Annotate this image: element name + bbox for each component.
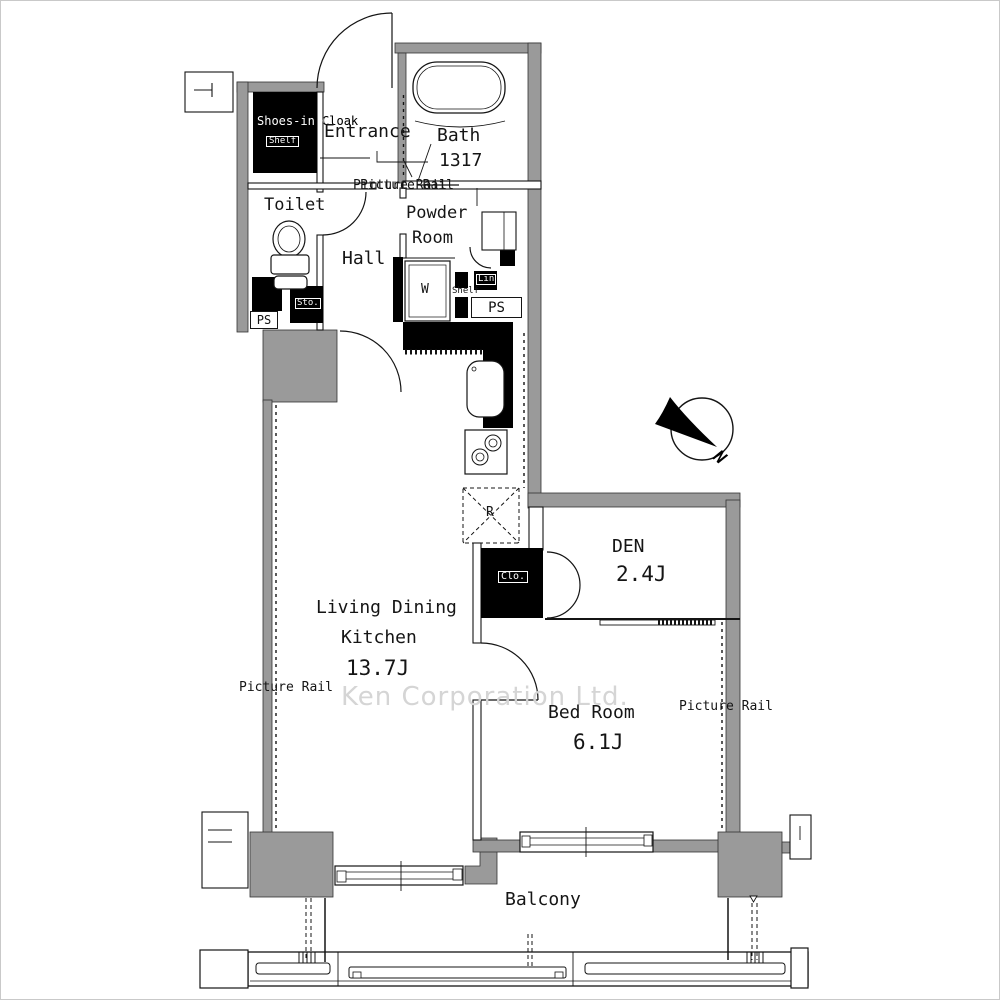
shutter-box-right [790, 815, 811, 859]
ps-left-label: PS [250, 311, 278, 329]
washer-label: W [421, 283, 429, 297]
balcony-railing [200, 948, 808, 988]
railing-bar-left [256, 963, 330, 974]
wall-den-top [528, 493, 740, 507]
den-label: DEN [612, 538, 645, 557]
shoes-in-cloak-box [253, 92, 317, 173]
ps-right-label: PS [471, 297, 522, 318]
toilet-bowl-inner [278, 226, 300, 252]
railing-bar-right [585, 963, 785, 974]
kitchen-counter-top [403, 322, 513, 350]
faucet-dot [472, 367, 476, 371]
closet-door-arc-lower [547, 585, 580, 618]
entrance-label: Entrance [324, 123, 411, 142]
meter-box [185, 72, 233, 112]
ldk-window-cap-left [337, 871, 346, 882]
wall-ldk-bed-lower [473, 700, 481, 840]
balcony-label: Balcony [505, 891, 581, 910]
ldk-label-2: Kitchen [341, 629, 417, 648]
powder-room-label-2: Room [412, 230, 453, 248]
column-bottom-right [718, 832, 782, 897]
wall-right-upper [528, 43, 541, 508]
railing-box-right [791, 948, 808, 988]
ldk-window-cap-right [453, 869, 462, 880]
bed-window-cap-left [522, 836, 530, 847]
bath-size-label: 1317 [439, 152, 482, 171]
railing-bar-mid [349, 967, 566, 978]
wall-ldk-bed-upper [473, 543, 481, 643]
railing-box-left [200, 950, 248, 988]
wall-toilet-upper [317, 92, 323, 192]
bath-label: Bath [437, 127, 480, 146]
shelf-block-b [455, 297, 468, 318]
toilet-label: Toilet [264, 197, 325, 215]
wall-entrance-top [237, 82, 324, 92]
column-bottom-left [250, 832, 333, 897]
basin-icon [482, 212, 516, 250]
outdoor-unit-left [202, 812, 248, 888]
bath-leader [418, 144, 431, 181]
wall-bed-bottom-right [653, 840, 726, 852]
closet-box [481, 548, 543, 618]
picture-rail-left-label: Picture Rail [239, 681, 333, 695]
powder-shelf-label: Shelf [452, 287, 479, 296]
wall-right-lower [726, 500, 740, 840]
floorplan-drawing: N [0, 0, 1000, 1000]
bedroom-window [520, 832, 653, 852]
bathtub-inner [417, 66, 501, 109]
compass-icon: N [655, 397, 733, 469]
wall-bath-top [395, 43, 541, 53]
wall-hall-powder-b [400, 234, 406, 258]
wall-den-closet-top [529, 507, 543, 550]
bedroom-size-label: 6.1J [573, 731, 624, 753]
bed-window-cap-right [644, 835, 652, 846]
burner-1-inner [476, 453, 484, 461]
compass-needle [655, 397, 717, 447]
toilet-base [274, 276, 307, 289]
picture-rail-right-label: Picture Rail [679, 700, 773, 714]
column-ldk-topleft [263, 330, 337, 402]
ldk-window [335, 866, 463, 885]
picture-rail-hall-label-ghost: Picture Rail [360, 179, 454, 193]
wall-washer-alcove [393, 257, 403, 322]
linen-label: Lin [476, 274, 496, 285]
hall-label: Hall [342, 250, 385, 269]
railing-hook-a [353, 972, 361, 978]
ldk-size-label: 13.7J [346, 657, 409, 679]
partition-arrow-right [750, 896, 757, 902]
wall-bed-bottom-left [473, 840, 521, 852]
shoes-shelf-label: Shelf [266, 136, 299, 147]
wall-ldk-left [263, 400, 272, 838]
burner-2-inner [489, 439, 497, 447]
powder-room-label-1: Powder [406, 205, 467, 223]
toilet-tank [271, 255, 309, 274]
hall-ldk-door-arc [340, 331, 401, 392]
fridge-label: R [486, 506, 494, 520]
toilet-door-arc [323, 192, 366, 235]
ldk-label-1: Living Dining [316, 599, 457, 618]
wall-left-upper [237, 82, 248, 332]
sliding-door-den [600, 620, 715, 625]
compass-north-label: N [708, 446, 730, 469]
bedroom-label: Bed Room [548, 704, 635, 723]
den-size-label: 2.4J [616, 563, 667, 585]
railing-hook-b [555, 972, 563, 978]
closet-label: Clo. [498, 571, 528, 583]
storage-label: Sto. [295, 298, 321, 309]
floor-plan: N Ken Corporation Ltd. Shoes-in Cloak Sh… [0, 0, 1000, 1000]
entrance-door-arc [317, 13, 392, 88]
closet-door-arc-upper [547, 552, 580, 585]
